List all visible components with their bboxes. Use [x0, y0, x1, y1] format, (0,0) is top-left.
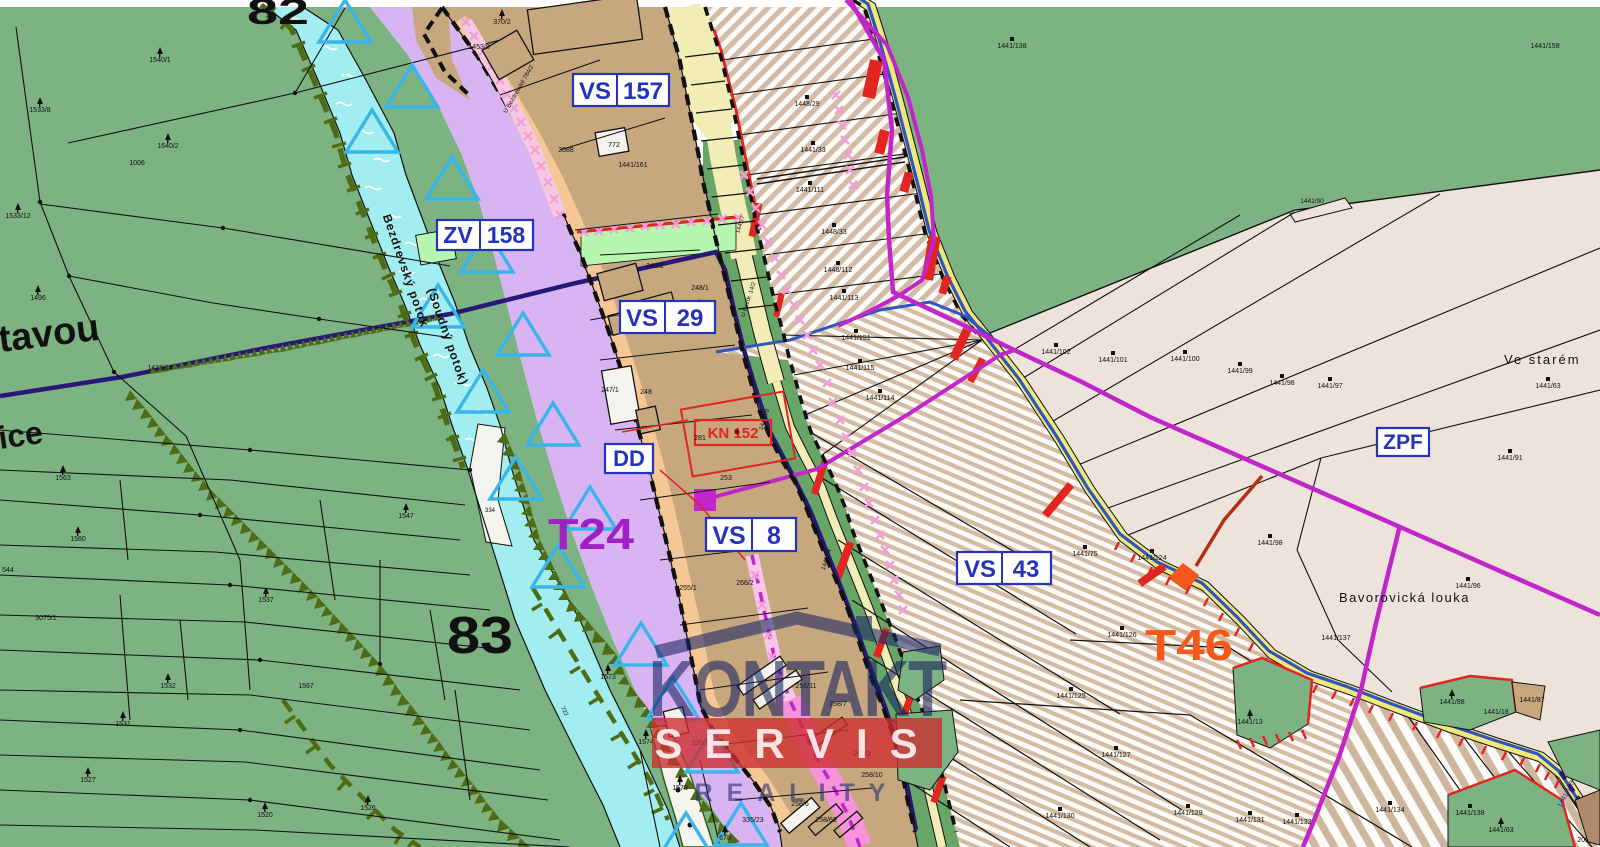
svg-text:1441/127: 1441/127: [1101, 752, 1130, 759]
svg-text:1441/87: 1441/87: [1519, 697, 1544, 704]
svg-text:258/69: 258/69: [815, 817, 837, 824]
svg-text:157: 157: [623, 78, 663, 105]
svg-text:1441/111: 1441/111: [796, 187, 824, 194]
svg-text:3075/1: 3075/1: [35, 615, 57, 622]
svg-text:1453/8: 1453/8: [468, 44, 490, 51]
svg-text:1574: 1574: [638, 739, 654, 746]
svg-text:KN 152: KN 152: [708, 425, 759, 442]
svg-text:678: 678: [719, 835, 731, 842]
svg-text:1441/113: 1441/113: [830, 295, 859, 302]
svg-text:1006: 1006: [129, 160, 145, 167]
svg-text:370/2: 370/2: [493, 19, 511, 26]
svg-text:1441/115: 1441/115: [846, 365, 875, 372]
svg-text:1560: 1560: [70, 536, 86, 543]
svg-text:248: 248: [640, 389, 652, 396]
svg-text:1527: 1527: [80, 777, 96, 784]
svg-text:1441/96: 1441/96: [1455, 583, 1480, 590]
svg-text:1520: 1520: [257, 812, 273, 819]
svg-text:1441/102: 1441/102: [1041, 349, 1070, 356]
svg-text:1578: 1578: [672, 785, 688, 792]
svg-text:335/23: 335/23: [742, 817, 764, 824]
svg-text:1441/13: 1441/13: [1237, 719, 1262, 726]
svg-text:1441/114: 1441/114: [866, 395, 895, 402]
svg-text:T24: T24: [548, 510, 635, 559]
svg-text:DD: DD: [613, 446, 645, 471]
svg-text:1441/97: 1441/97: [1317, 383, 1342, 390]
svg-text:1441/130: 1441/130: [1045, 813, 1074, 820]
svg-text:772: 772: [608, 142, 620, 149]
svg-text:1441/151: 1441/151: [841, 335, 870, 342]
svg-text:258/10: 258/10: [861, 772, 883, 779]
svg-text:1532: 1532: [160, 683, 176, 690]
svg-text:VS: VS: [579, 78, 611, 105]
svg-text:1448/112: 1448/112: [824, 267, 853, 274]
svg-text:ice: ice: [0, 414, 45, 456]
svg-text:1533/8: 1533/8: [29, 107, 51, 114]
svg-text:1441/18: 1441/18: [1483, 709, 1508, 716]
svg-text:334: 334: [485, 508, 496, 514]
svg-text:1441/90: 1441/90: [1300, 198, 1324, 205]
svg-text:1540/1: 1540/1: [149, 57, 171, 64]
svg-text:253: 253: [720, 475, 732, 482]
svg-text:8: 8: [767, 522, 781, 550]
svg-text:1573: 1573: [600, 674, 616, 681]
svg-text:1441/98: 1441/98: [1257, 540, 1282, 547]
svg-text:1441/138: 1441/138: [997, 43, 1026, 50]
svg-text:1441/63: 1441/63: [1535, 383, 1560, 390]
svg-text:83: 83: [447, 607, 513, 665]
svg-text:1448/33: 1448/33: [821, 229, 846, 236]
svg-text:1537: 1537: [258, 597, 274, 604]
svg-text:T46: T46: [1145, 621, 1233, 670]
svg-text:1441/101: 1441/101: [1098, 357, 1127, 364]
svg-text:1640/2: 1640/2: [157, 143, 179, 150]
svg-text:544: 544: [2, 567, 14, 574]
svg-text:43: 43: [1013, 556, 1040, 583]
svg-text:Bavorovická louka: Bavorovická louka: [1339, 590, 1470, 605]
svg-text:1441/125: 1441/125: [1056, 693, 1085, 700]
svg-text:1441/138: 1441/138: [1455, 810, 1484, 817]
svg-text:248/2: 248/2: [646, 263, 664, 270]
svg-text:1441/134: 1441/134: [1375, 807, 1404, 814]
svg-text:1441/99: 1441/99: [1227, 368, 1252, 375]
svg-text:1441/91: 1441/91: [1497, 455, 1522, 462]
svg-text:247/1: 247/1: [601, 387, 619, 394]
svg-text:1441/132: 1441/132: [1282, 819, 1311, 826]
svg-text:ZV: ZV: [443, 222, 473, 248]
svg-text:1441/124: 1441/124: [1137, 555, 1166, 562]
svg-text:1496: 1496: [30, 295, 46, 302]
svg-text:248/1: 248/1: [691, 285, 709, 292]
svg-text:1441/126: 1441/126: [1107, 632, 1136, 639]
svg-text:1533/12: 1533/12: [5, 213, 30, 220]
svg-text:1563: 1563: [55, 475, 71, 482]
svg-text:1441/75: 1441/75: [1072, 551, 1097, 558]
svg-text:1441/33: 1441/33: [800, 147, 825, 154]
svg-text:1531: 1531: [115, 721, 131, 728]
svg-text:1441/137: 1441/137: [1321, 635, 1350, 642]
svg-text:REALITY: REALITY: [695, 779, 900, 807]
svg-text:1441/131: 1441/131: [1235, 817, 1264, 824]
svg-text:1547: 1547: [398, 513, 414, 520]
svg-text:266/2: 266/2: [736, 580, 754, 587]
svg-text:SERVIS: SERVIS: [654, 720, 939, 767]
svg-text:1441/98: 1441/98: [1269, 380, 1294, 387]
svg-text:1448/29: 1448/29: [794, 101, 819, 108]
svg-text:ZPF: ZPF: [1383, 431, 1423, 454]
svg-text:1441/100: 1441/100: [1170, 356, 1199, 363]
svg-text:1441/158: 1441/158: [1530, 43, 1559, 50]
svg-text:1441/129: 1441/129: [1173, 810, 1202, 817]
svg-text:1441/88: 1441/88: [1439, 699, 1464, 706]
svg-text:1441/63: 1441/63: [1488, 827, 1513, 834]
svg-text:29: 29: [677, 305, 704, 332]
svg-text:VS: VS: [626, 305, 658, 332]
svg-text:2088: 2088: [558, 147, 574, 154]
svg-text:82: 82: [247, 0, 309, 32]
svg-text:158: 158: [487, 222, 526, 248]
svg-text:1567: 1567: [298, 683, 314, 690]
svg-text:VS: VS: [712, 522, 745, 550]
svg-text:281: 281: [694, 435, 706, 442]
svg-text:Ve starém: Ve starém: [1504, 352, 1581, 367]
svg-text:VS: VS: [964, 556, 996, 583]
svg-text:1526: 1526: [360, 805, 376, 812]
svg-text:1441/161: 1441/161: [618, 162, 647, 169]
svg-text:255/1: 255/1: [679, 585, 697, 592]
svg-text:1433/14: 1433/14: [147, 365, 172, 372]
